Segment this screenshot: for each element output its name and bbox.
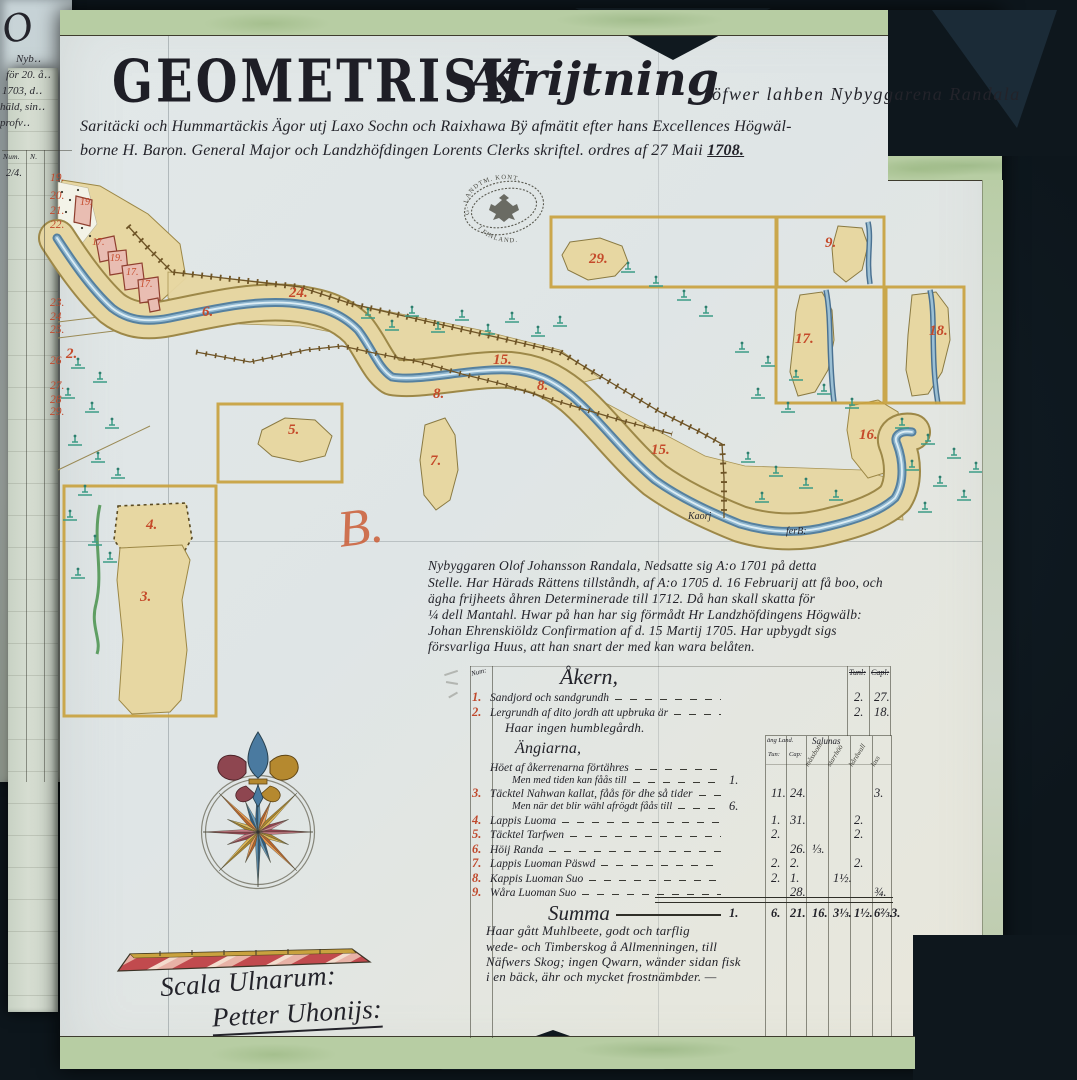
summa-c6: 6⅔. — [874, 906, 893, 921]
closing-line: i en bäck, ähr och mycket frostnämbder. … — [486, 969, 716, 985]
side-parcel-number: 26 — [50, 355, 62, 367]
parcel-number: 8. — [433, 386, 444, 403]
side-header-n: N. — [30, 152, 37, 161]
row-text: Wåra Luoman Suo — [490, 887, 576, 899]
paragraph-line: ¼ dell Mantahl. Hwar på han har sig förm… — [428, 607, 862, 623]
side-parcel-number: 24 — [50, 311, 62, 323]
parcel-number: 7. — [430, 453, 441, 470]
parcel-number: 16. — [859, 427, 878, 444]
value-c6: 18. — [874, 705, 890, 720]
row-number: 8. — [458, 871, 490, 886]
summa-c4: 3⅓. — [833, 906, 852, 921]
dash-leader — [678, 808, 721, 810]
side-header-num: Num. — [3, 152, 20, 161]
summa-pre: 1. — [729, 906, 738, 921]
summa-c2: 21. — [790, 906, 806, 921]
parcel-number: 17. — [795, 331, 814, 348]
river-place-label: ferB: — [786, 526, 807, 537]
row-text: Höet af åkerrenarna förtähres — [490, 762, 629, 774]
value-c1: 2. — [771, 856, 780, 871]
row-values: 28.¾. — [725, 885, 905, 900]
summa-rule — [616, 914, 721, 916]
dash-leader — [549, 851, 721, 853]
paragraph-line: försvarliga Huus, att han snart der med … — [428, 639, 755, 655]
row-values: 2.2.2. — [725, 856, 905, 871]
dash-leader — [582, 894, 721, 896]
paragraph-line: Johan Ehrenskiöldz Confirmation af d. 15… — [428, 623, 837, 639]
value-c2: 31. — [790, 813, 806, 828]
row-values: 2.27. — [725, 690, 905, 705]
side-parcel-number: 25. — [50, 324, 64, 336]
side-parcel-number: 29. — [50, 406, 64, 418]
side-line: 1703, d‥ — [2, 84, 42, 97]
table-row: 8.Kappis Luoman Suo2.1.1½. — [458, 871, 905, 886]
table-row: 7.Lappis Luoman Päswd2.2.2. — [458, 856, 905, 871]
summa-label: Summa — [548, 901, 610, 926]
table-row: 9.Wåra Luoman Suo28.¾. — [458, 885, 905, 900]
row-values: 6. — [725, 799, 905, 814]
side-parcel-number: 22. — [50, 219, 64, 231]
row-text: Lergrundh af dito jordh att upbruka är — [490, 707, 668, 719]
value-c1: 2. — [771, 827, 780, 842]
row-values: 1.31.2. — [725, 813, 905, 828]
side-line: profv‥ — [0, 116, 30, 129]
row-number: 5. — [458, 827, 490, 842]
row-text: Täcktel Tarfwen — [490, 829, 564, 841]
angarna-heading: Ängiarna, — [515, 740, 581, 758]
closing-line: Haar gått Muhlbeete, godt och tarflig — [486, 923, 690, 939]
row-number: 2. — [458, 705, 490, 720]
summa-post: 3. — [891, 906, 900, 921]
parcel-number: 17. — [140, 279, 153, 290]
summa-row: Summa1.6.21.16.3⅓.1½.6⅔.3. — [458, 903, 905, 923]
parcel-number: 29. — [589, 251, 608, 268]
dash-leader — [570, 836, 721, 838]
row-number: 4. — [458, 813, 490, 828]
paragraph-line: ägha frijheets åhren Determinerade till … — [428, 591, 815, 607]
side-col-line — [26, 150, 27, 782]
row-text: Lappis Luoman Päswd — [490, 858, 595, 870]
row-values: 26.⅓. — [725, 842, 905, 857]
table-row: Men när det blir wähl afrögdt fåås till6… — [458, 799, 905, 814]
parcel-number: 5. — [288, 422, 299, 439]
subtable-group-left: äng Land. — [767, 737, 793, 744]
value-c1: 2. — [771, 871, 780, 886]
value-c5: 2. — [854, 827, 863, 842]
table-row: 6.Höij Randa26.⅓. — [458, 842, 905, 857]
summa-c5: 1½. — [854, 906, 873, 921]
dash-leader — [589, 880, 721, 882]
value-c2: 28. — [790, 885, 806, 900]
parcel-number: 18. — [929, 323, 948, 340]
side-line: för 20. å‥ — [6, 68, 51, 81]
value-c6: ¾. — [874, 885, 887, 900]
table-row: 1.Sandjord och sandgrundh2.27. — [458, 690, 905, 705]
parcel-number: 17. — [92, 237, 105, 248]
row-text: Men när det blir wähl afrögdt fåås till — [490, 801, 672, 812]
parcel-number: 15. — [651, 442, 670, 459]
side-parcel-number: 20. — [50, 190, 64, 202]
parcel-number: 8. — [537, 378, 548, 395]
row-text: Men med tiden kan fåås till — [490, 775, 627, 786]
table-top-rule — [470, 666, 890, 667]
row-number: 6. — [458, 842, 490, 857]
row-text: Kappis Luoman Suo — [490, 873, 583, 885]
side-parcel-number: 27. — [50, 380, 64, 392]
parcel-number: 3. — [140, 589, 151, 606]
row-text: Täcktel Nahwan kallat, fåås för dhe så t… — [490, 788, 693, 800]
parcel-number: 24. — [289, 285, 308, 302]
parcel-number: 19. — [80, 197, 93, 208]
row-values: 2.1.1½. — [725, 871, 905, 886]
parcel-number: 15. — [493, 352, 512, 369]
dash-leader — [562, 822, 721, 824]
parcel-number: 17. — [126, 267, 139, 278]
dash-leader — [699, 795, 721, 797]
subtable-tun: Tun: — [768, 751, 780, 758]
value-c2: 2. — [790, 856, 799, 871]
value-c4: 1½. — [833, 871, 852, 886]
dash-leader — [674, 714, 721, 716]
parcel-number: 6. — [202, 304, 213, 321]
table-row: 4.Lappis Luoma1.31.2. — [458, 813, 905, 828]
row-number: 7. — [458, 856, 490, 871]
tunl-header: Tunl: — [849, 668, 866, 677]
value-c6: 27. — [874, 690, 890, 705]
side-line: häld, sin‥ — [0, 100, 45, 113]
dash-leader — [601, 865, 721, 867]
dash-leader — [615, 699, 721, 701]
table-row: 2.Lergrundh af dito jordh att upbruka är… — [458, 705, 905, 720]
row-values: 2.2. — [725, 827, 905, 842]
paragraph-line: Stelle. Har Härads Rättens tillståndh, a… — [428, 575, 883, 591]
akern-heading: Åkern, — [560, 664, 618, 690]
dash-leader — [633, 782, 721, 784]
value-c2: 1. — [790, 871, 799, 886]
closing-line: wede- och Timberskog å Allmenningen, til… — [486, 939, 717, 955]
value-c5: 2. — [854, 705, 863, 720]
red-flourish-mark: B. — [334, 495, 387, 560]
summa-c1: 6. — [771, 906, 780, 921]
table-row: 5.Täcktel Tarfwen2.2. — [458, 827, 905, 842]
side-parcel-number: 28 — [50, 394, 62, 406]
scanned-survey-map: GEOMETRISK Afrijtning öfwer lahben Nybyg… — [0, 0, 1077, 1080]
parcel-number: 19. — [110, 253, 123, 264]
side-mark: 2/4. — [6, 168, 22, 179]
value-c5: 2. — [854, 813, 863, 828]
subtable-cap: Cap: — [789, 751, 802, 758]
row-values: 2.18. — [725, 705, 905, 720]
row-text: Höij Randa — [490, 844, 543, 856]
parcel-number: 9. — [825, 235, 836, 252]
side-header-rule — [2, 150, 72, 151]
row-text: Lappis Luoma — [490, 815, 556, 827]
dash-leader — [635, 769, 721, 771]
value-pre: 6. — [729, 799, 738, 814]
value-c1: 1. — [771, 813, 780, 828]
side-col-line — [44, 150, 45, 782]
value-c5: 2. — [854, 690, 863, 705]
side-parcel-number: 19. — [50, 172, 64, 184]
row-number: 1. — [458, 690, 490, 705]
paragraph-line: Nybyggaren Olof Johansson Randala, Nedsa… — [428, 558, 817, 574]
summa-c3: 16. — [812, 906, 828, 921]
row-text: Sandjord och sandgrundh — [490, 692, 609, 704]
side-parcel-number: 23. — [50, 297, 64, 309]
parcel-number: 4. — [146, 517, 157, 534]
value-c3: ⅓. — [812, 842, 825, 857]
row-number: 9. — [458, 885, 490, 900]
side-line: Nyb‥ — [16, 52, 41, 65]
value-c2: 26. — [790, 842, 806, 857]
parcel-number: 2. — [66, 346, 77, 363]
side-parcel-number: 21. — [50, 205, 64, 217]
table-note: Haar ingen humblegårdh. — [505, 720, 645, 736]
capl-header: Capl: — [871, 668, 889, 677]
value-c5: 2. — [854, 856, 863, 871]
summa-values: 1.6.21.16.3⅓.1½.6⅔.3. — [725, 906, 905, 921]
river-place-label: Kaorj — [688, 511, 711, 522]
closing-line: Näfwers Skog; ingen Qwarn, wänder sidan … — [486, 954, 741, 970]
